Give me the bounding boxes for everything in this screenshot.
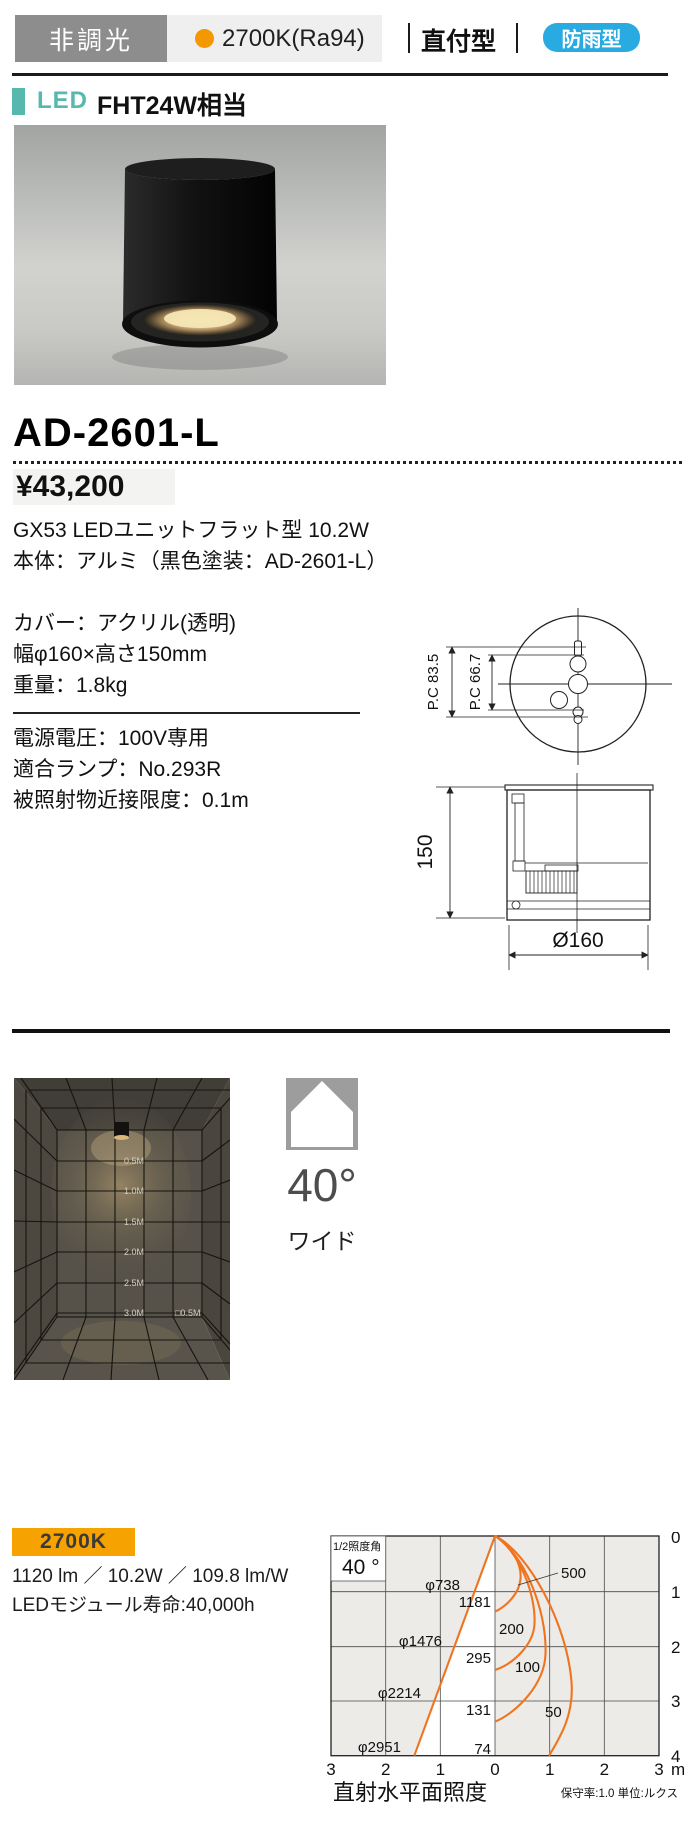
iso-500-label: 500	[561, 1565, 586, 1582]
model-number: AD-2601-L	[13, 411, 220, 456]
mount-type-label: 直付型	[421, 22, 496, 58]
dotted-rule	[13, 461, 682, 464]
color-temp-chip: 2700K	[12, 1528, 135, 1556]
ceiling-light-fixture	[122, 158, 278, 348]
top-rule	[12, 73, 668, 76]
y-tick: 2	[671, 1638, 680, 1657]
illuminance-2m: 295	[466, 1650, 491, 1667]
half-angle-label: 1/2照度角	[333, 1539, 381, 1553]
lamp-equivalent-label: FHT24W相当	[97, 86, 247, 122]
fixture-shadow	[112, 344, 288, 370]
iso-200-label: 200	[499, 1621, 524, 1638]
catalog-page: 非調光 2700K(Ra94) 直付型 防雨型 LED FHT24W相当	[0, 0, 695, 1834]
x-tick: 1	[545, 1760, 554, 1779]
x-axis-unit: m	[671, 1760, 685, 1779]
luminous-output-line: 1120 lm ／ 10.2W ／ 109.8 lm/W	[12, 1561, 288, 1588]
x-tick: 2	[600, 1760, 609, 1779]
grid-scale-label: □0.5M	[175, 1308, 200, 1318]
pc-outer-dimension-label: P.C 83.5	[425, 654, 442, 710]
spec-body: 本体：アルミ（黒色塗装：AD-2601-L）	[13, 546, 433, 577]
floor-glow	[61, 1321, 181, 1365]
beam-spread-label: ワイド	[272, 1222, 372, 1256]
depth-label: 2.5M	[124, 1278, 144, 1288]
x-tick: 2	[381, 1760, 390, 1779]
illuminance-1m: 1181	[459, 1594, 491, 1611]
led-label: LED	[37, 87, 88, 115]
spec-lamp-type: GX53 LEDユニットフラット型 10.2W	[13, 515, 433, 546]
beam-diameter-1m: φ738	[425, 1577, 460, 1594]
color-temp-badge-label: 2700K(Ra94)	[222, 25, 365, 53]
separator-bar	[516, 23, 518, 53]
chart-title: 直射水平面照度	[333, 1780, 487, 1805]
beam-diameter-4m: φ2951	[358, 1739, 401, 1756]
half-angle-value: 40 °	[342, 1556, 380, 1579]
iso-50-label: 50	[545, 1704, 562, 1721]
y-tick: 1	[671, 1583, 680, 1602]
y-tick: 3	[671, 1692, 680, 1711]
illuminance-4m: 74	[474, 1741, 491, 1758]
separator-bar	[408, 23, 410, 53]
beam-angle-value: 40°	[272, 1158, 372, 1212]
dimension-drawing: P.C 83.5 P.C 66.7 150 Ø160	[340, 595, 695, 975]
depth-label: 3.0M	[124, 1308, 144, 1318]
x-tick: 3	[326, 1760, 335, 1779]
price: ¥43,200	[13, 469, 175, 505]
depth-label: 0.5M	[124, 1156, 144, 1166]
depth-label: 1.5M	[124, 1217, 144, 1227]
beam-spread-icon	[286, 1078, 358, 1150]
pc-inner-dimension-label: P.C 66.7	[467, 654, 484, 710]
depth-label: 1.0M	[124, 1186, 144, 1196]
room-fixture-lens	[114, 1135, 129, 1140]
illuminance-3m: 131	[466, 1702, 491, 1719]
beam-diameter-3m: φ2214	[378, 1685, 421, 1702]
side-view	[436, 773, 653, 970]
height-dimension-label: 150	[414, 834, 437, 869]
x-tick: 0	[490, 1760, 499, 1779]
iso-100-label: 100	[515, 1659, 540, 1676]
y-tick: 0	[671, 1532, 680, 1547]
dimming-badge: 非調光	[15, 15, 167, 62]
spec-divider	[13, 712, 360, 714]
depth-label: 2.0M	[124, 1247, 144, 1257]
photometry-room-image: 0.5M 1.0M 1.5M 2.0M 2.5M 3.0M □0.5M	[14, 1078, 230, 1380]
led-accent-bar	[12, 88, 25, 115]
x-tick: 3	[654, 1760, 663, 1779]
beam-diameter-2m: φ1476	[399, 1633, 442, 1650]
room-fixture	[114, 1122, 129, 1137]
diameter-dimension-label: Ø160	[552, 929, 603, 952]
chart-note: 保守率:1.0 単位:ルクス	[561, 1786, 678, 1800]
led-lifespan-line: LEDモジュール寿命:40,000h	[12, 1590, 255, 1617]
color-temp-badge: 2700K(Ra94)	[167, 15, 382, 62]
illuminance-chart: 1/2照度角 40 ° φ738 1181 φ1476 295 φ2214 13…	[300, 1532, 695, 1817]
x-tick: 1	[436, 1760, 445, 1779]
color-temp-dot-icon	[195, 29, 214, 48]
section-divider	[12, 1029, 670, 1033]
product-photo	[14, 125, 386, 385]
weatherproof-badge: 防雨型	[543, 23, 640, 52]
